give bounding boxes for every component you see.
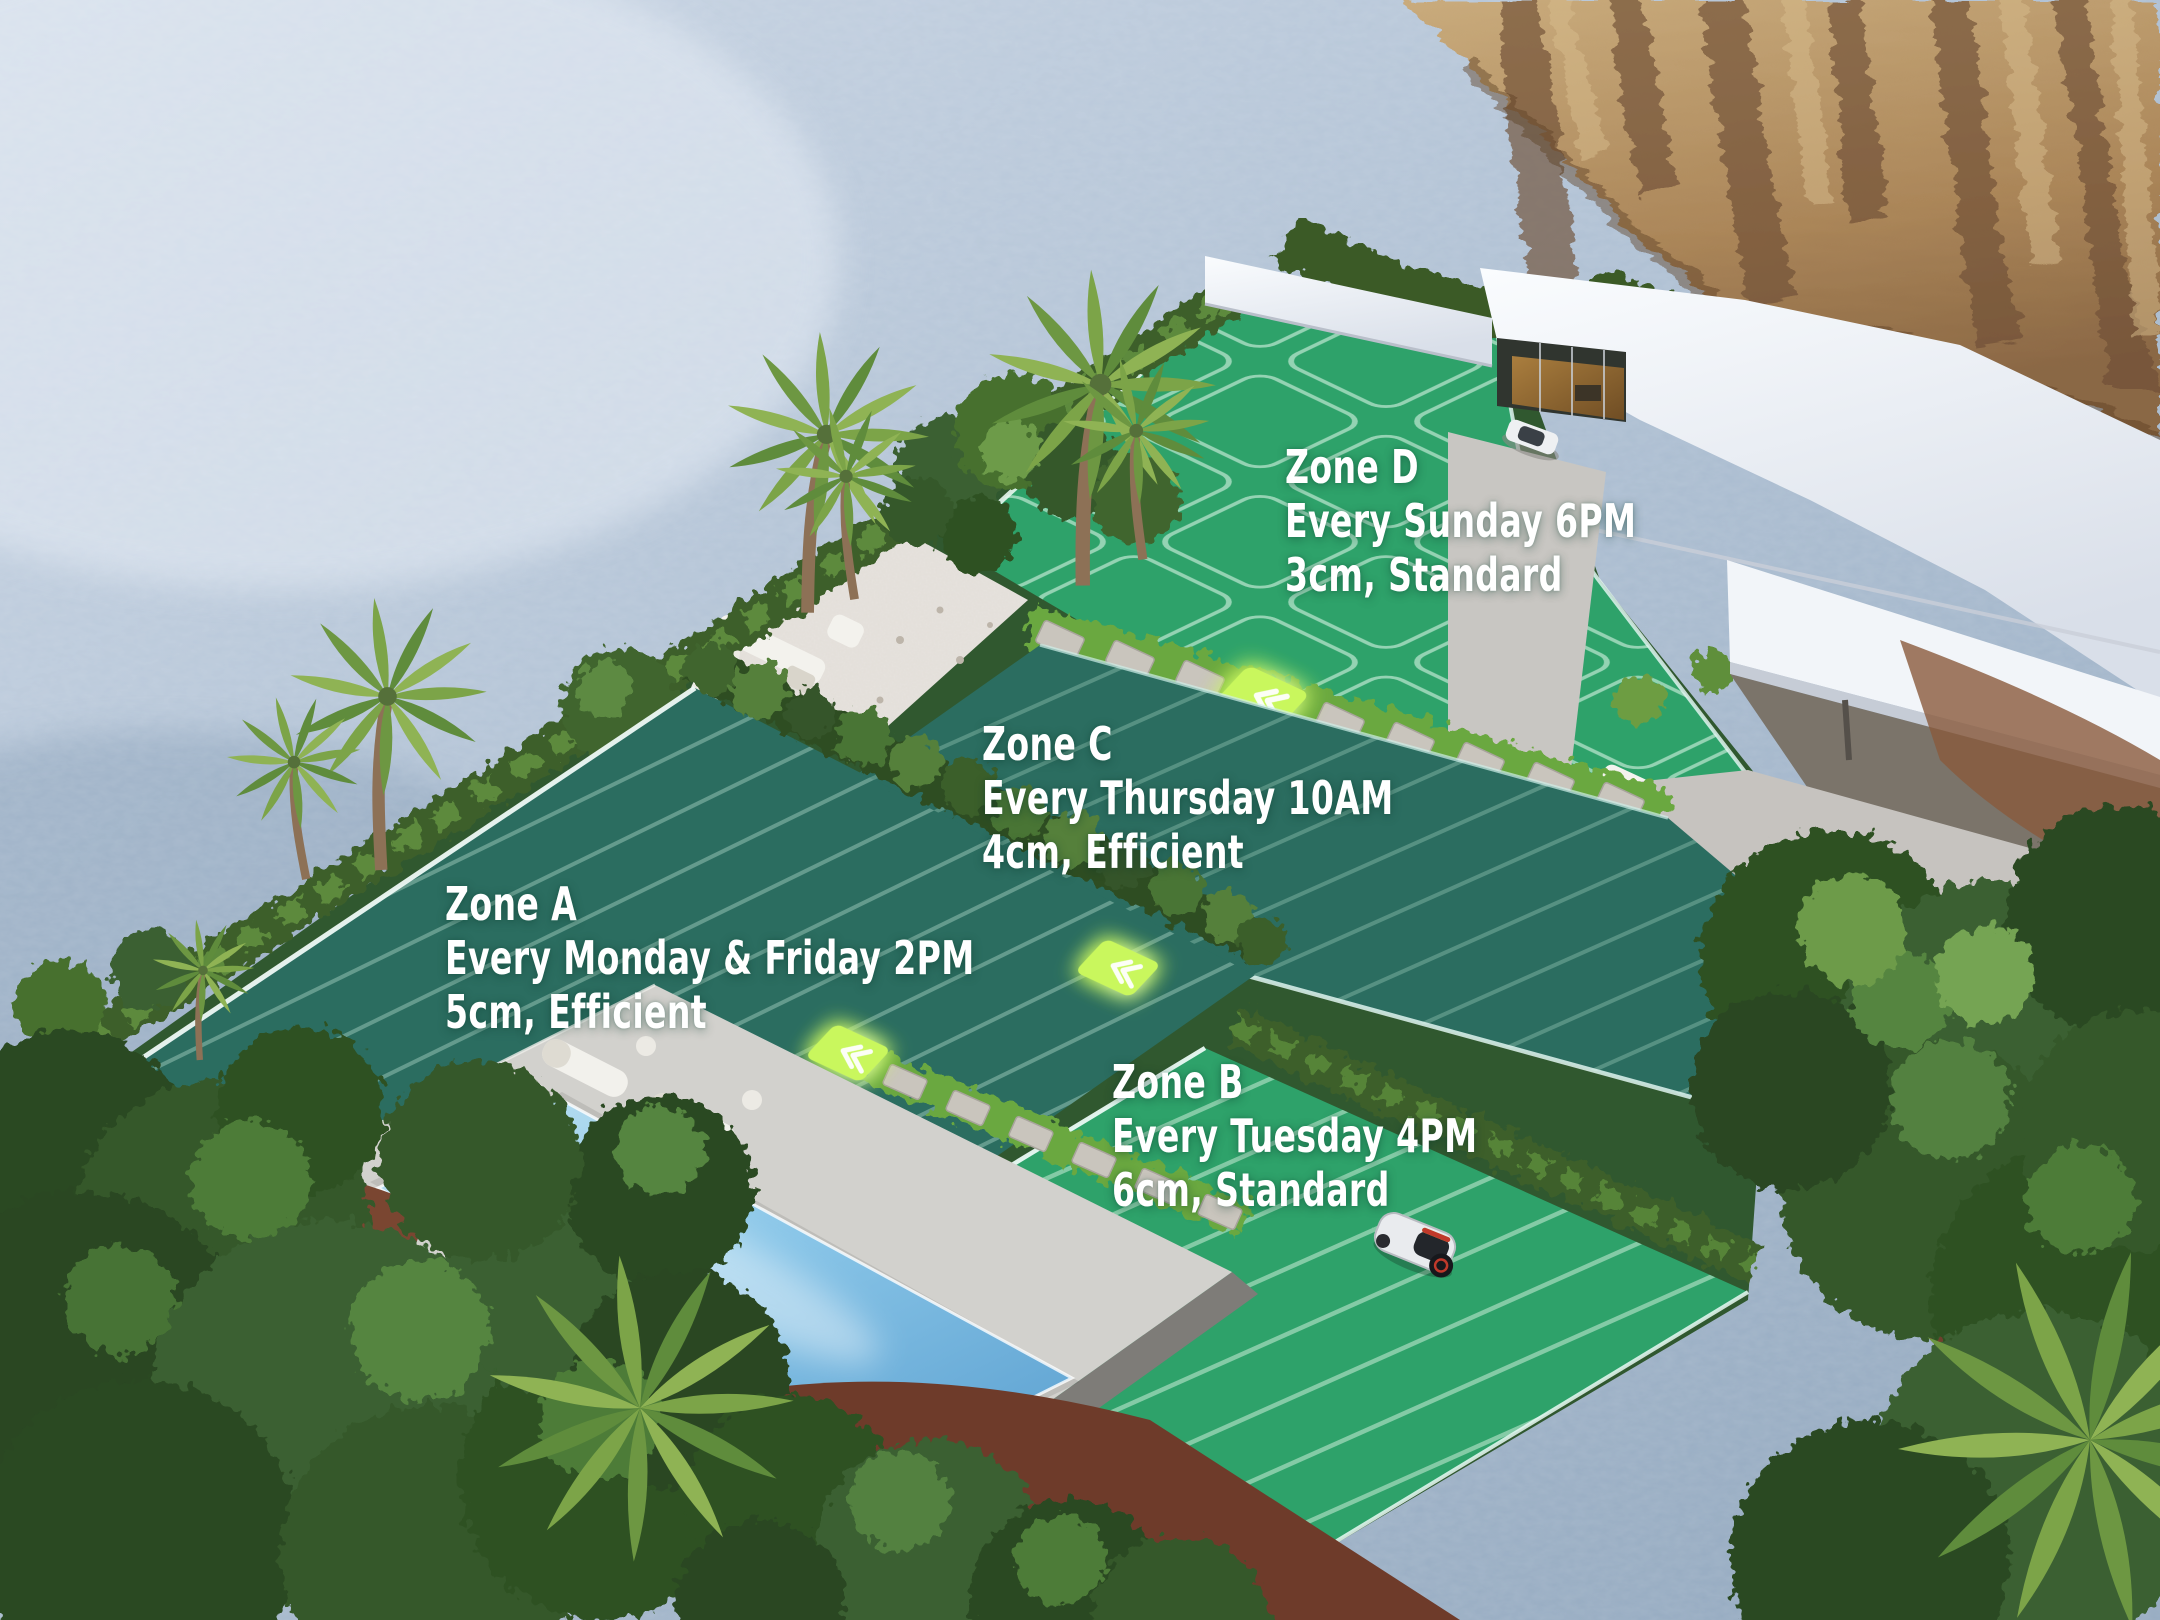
zone-a-name: Zone A: [445, 878, 975, 932]
zone-a-schedule: Every Monday & Friday 2PM: [445, 932, 975, 986]
zone-b-name: Zone B: [1112, 1056, 1477, 1110]
zone-c-schedule: Every Thursday 10AM: [982, 772, 1394, 826]
zone-d-label: Zone D Every Sunday 6PM 3cm, Standard: [1285, 441, 1636, 602]
zone-a-setting: 5cm, Efficient: [445, 986, 975, 1040]
zone-c-setting: 4cm, Efficient: [982, 826, 1394, 880]
zone-labels-layer: Zone A Every Monday & Friday 2PM 5cm, Ef…: [0, 0, 2160, 1620]
zone-b-label: Zone B Every Tuesday 4PM 6cm, Standard: [1112, 1056, 1477, 1217]
zone-c-name: Zone C: [982, 718, 1394, 772]
zone-d-schedule: Every Sunday 6PM: [1285, 495, 1636, 549]
zone-a-label: Zone A Every Monday & Friday 2PM 5cm, Ef…: [445, 878, 975, 1039]
zone-b-schedule: Every Tuesday 4PM: [1112, 1110, 1477, 1164]
zone-c-label: Zone C Every Thursday 10AM 4cm, Efficien…: [982, 718, 1394, 879]
zone-d-setting: 3cm, Standard: [1285, 549, 1636, 603]
zone-d-name: Zone D: [1285, 441, 1636, 495]
zone-b-setting: 6cm, Standard: [1112, 1164, 1477, 1218]
